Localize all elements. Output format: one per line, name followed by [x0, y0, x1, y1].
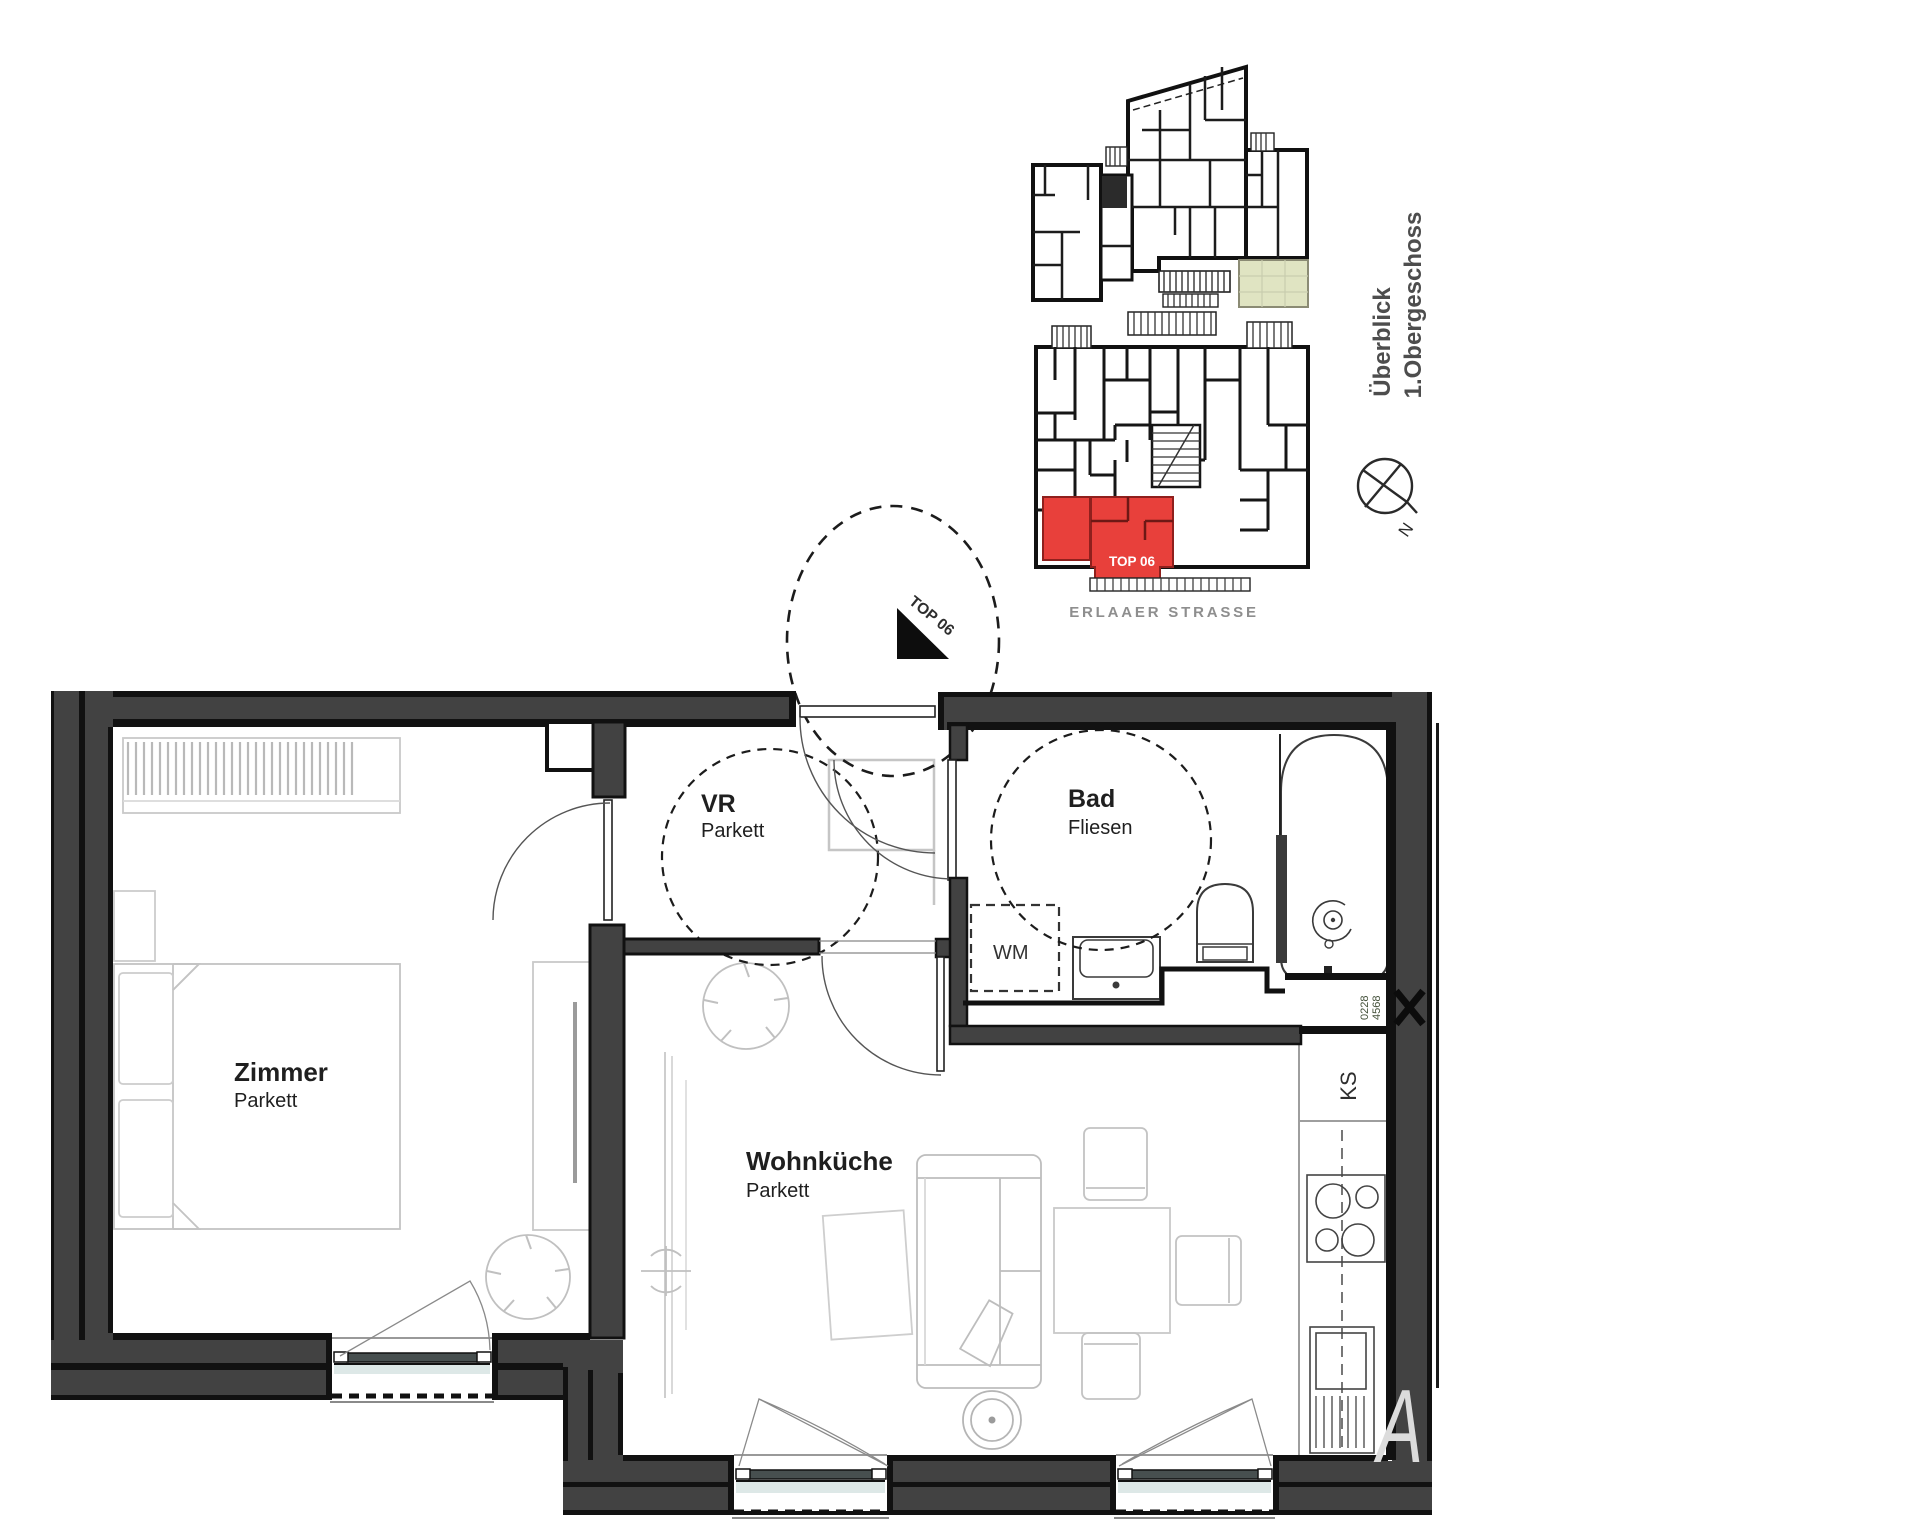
svg-text:Bad: Bad	[1068, 785, 1115, 813]
svg-text:0228: 0228	[1359, 996, 1371, 1020]
svg-text:Zimmer: Zimmer	[234, 1057, 328, 1087]
svg-text:Parkett: Parkett	[701, 820, 765, 842]
svg-text:KS: KS	[1336, 1071, 1361, 1100]
svg-text:4568: 4568	[1371, 996, 1383, 1020]
svg-text:Parkett: Parkett	[746, 1180, 810, 1202]
svg-text:Wohnküche: Wohnküche	[746, 1146, 893, 1176]
svg-text:WM: WM	[993, 942, 1029, 964]
svg-text:Überblick: Überblick	[1369, 287, 1396, 397]
svg-text:Parkett: Parkett	[234, 1090, 298, 1112]
svg-text:A: A	[1373, 1369, 1423, 1485]
svg-text:Fliesen: Fliesen	[1068, 817, 1132, 839]
svg-text:ERLAAER STRASSE: ERLAAER STRASSE	[1069, 604, 1259, 621]
svg-text:1.Obergeschoss: 1.Obergeschoss	[1400, 212, 1427, 399]
svg-text:TOP 06: TOP 06	[1109, 554, 1156, 569]
svg-text:VR: VR	[701, 790, 736, 818]
